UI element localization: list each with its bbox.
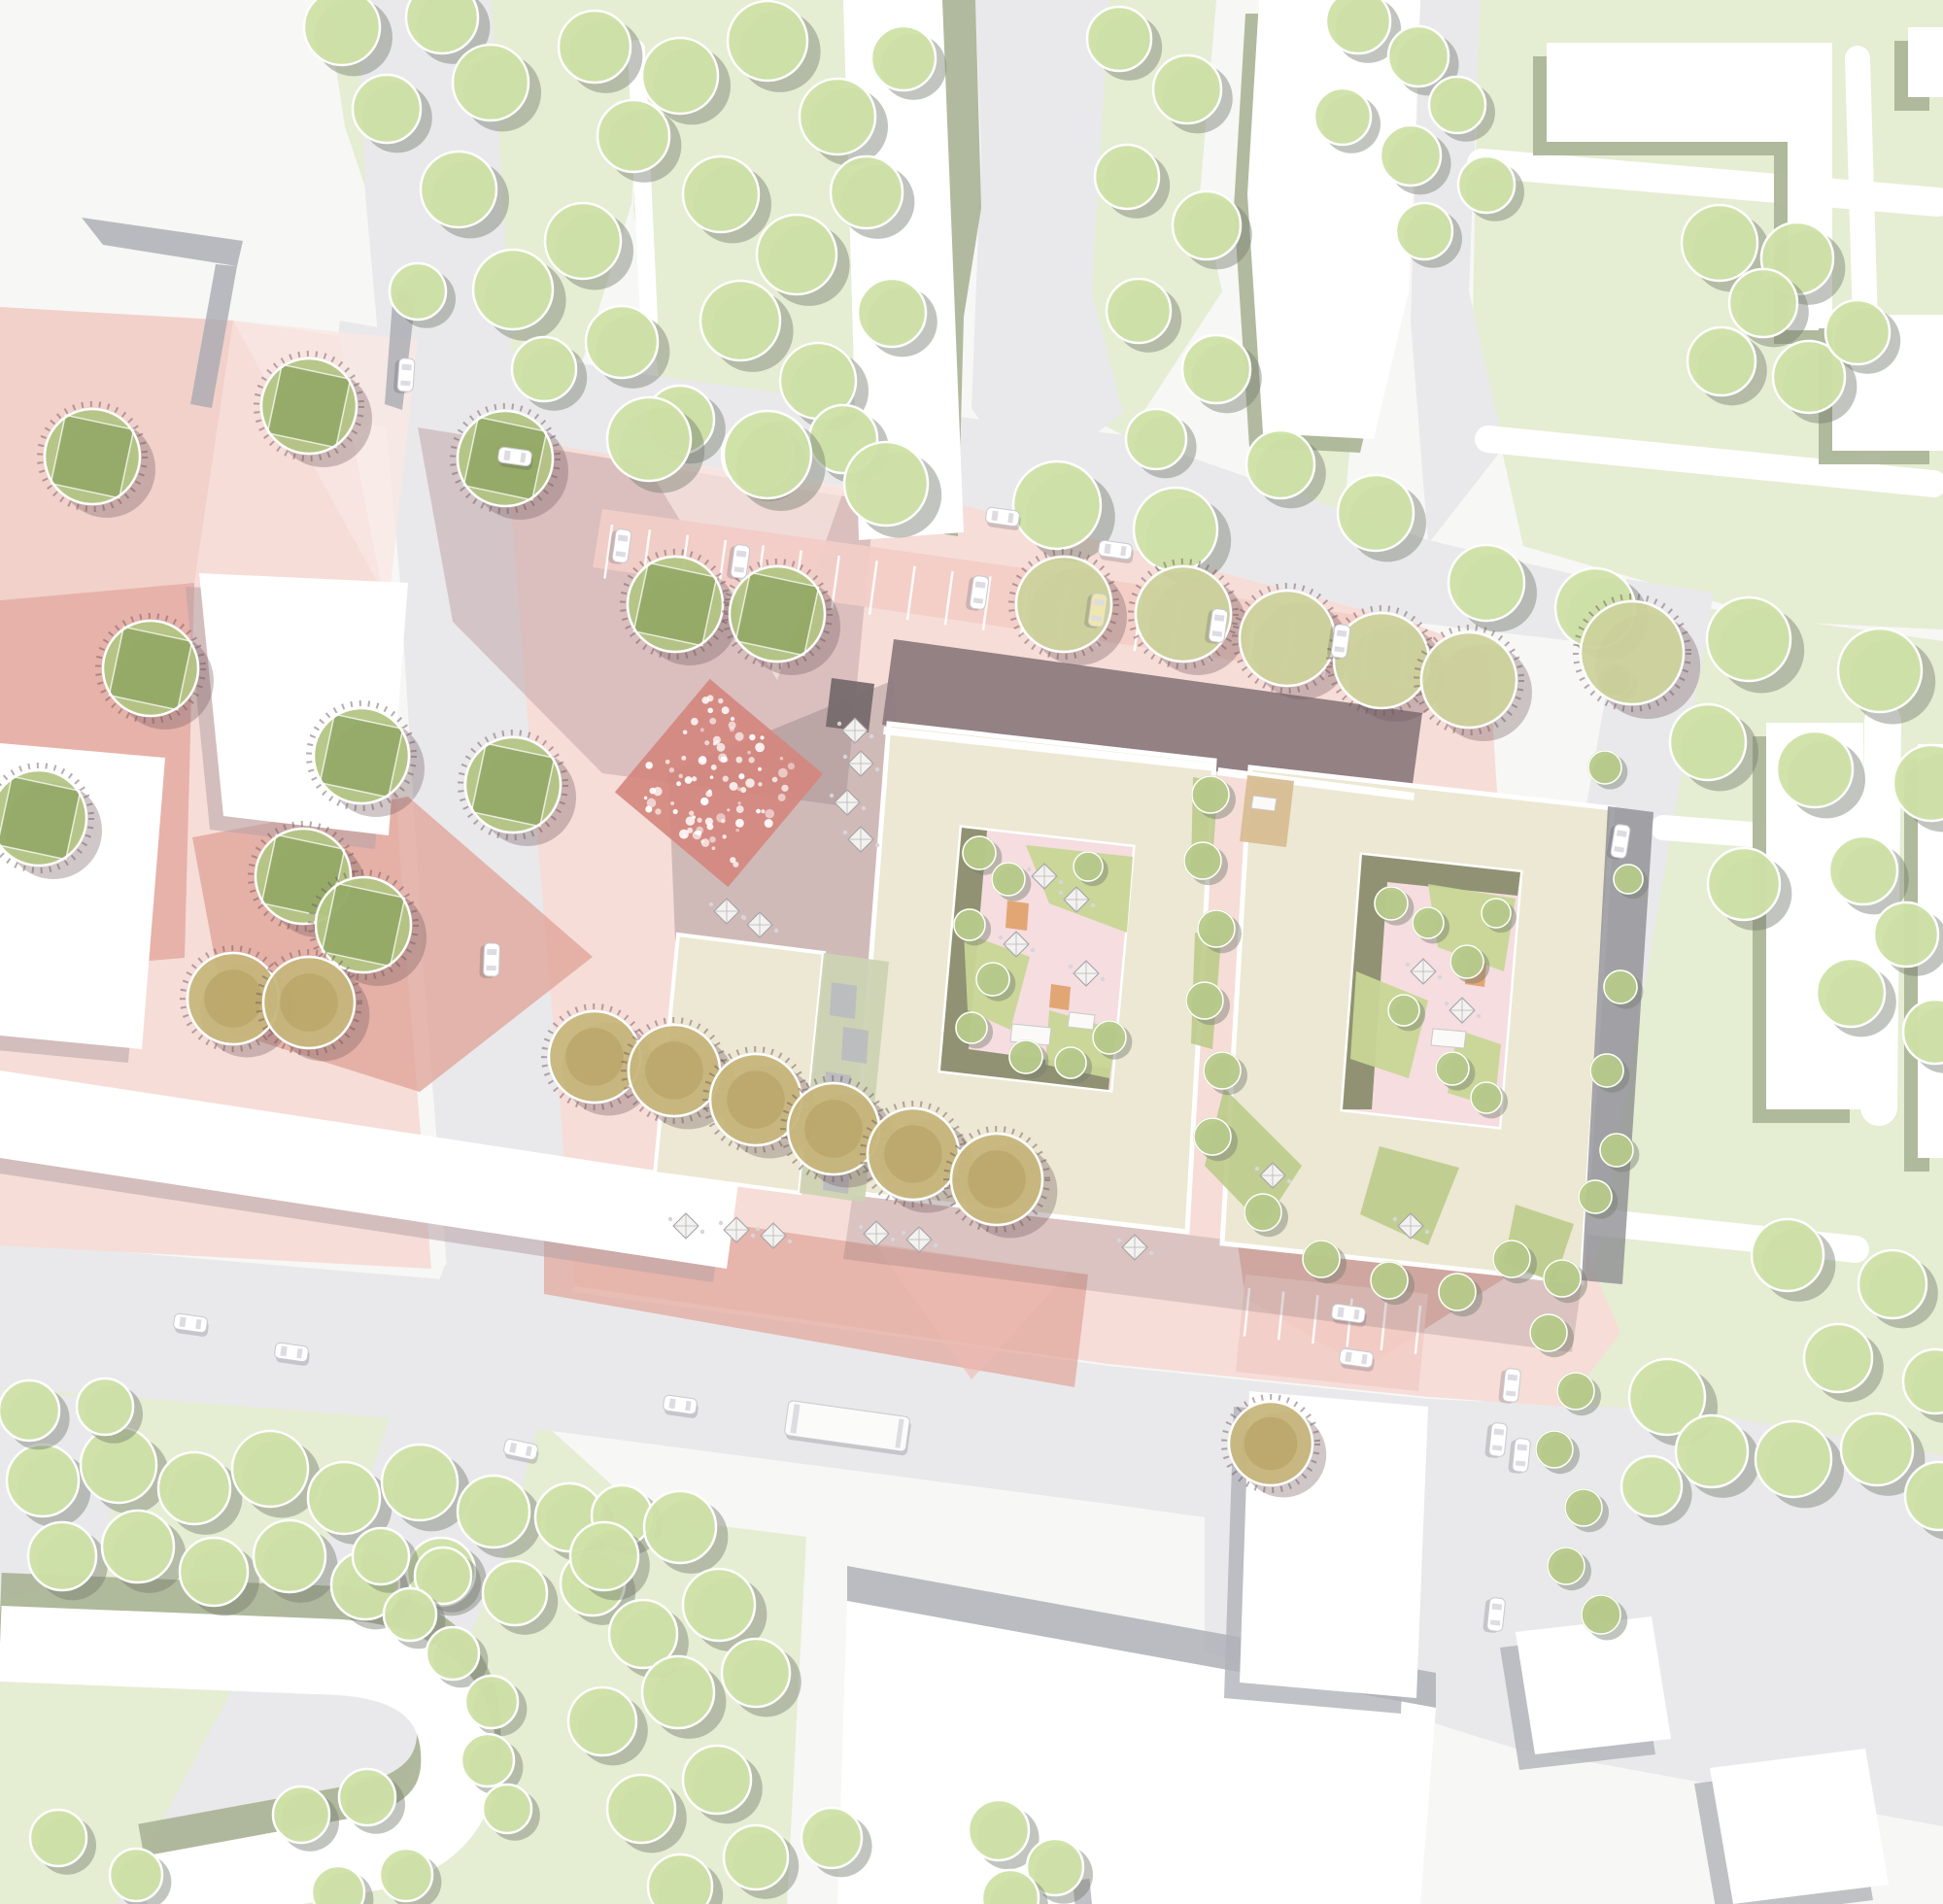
tree-planter: [267, 364, 350, 447]
car: [1508, 1438, 1531, 1475]
courtyard-element: [1006, 901, 1029, 931]
table-dot: [1425, 1230, 1429, 1234]
fountain-spray-dot: [723, 834, 727, 838]
tree: [1587, 750, 1622, 785]
car-body: [1488, 1422, 1507, 1456]
fountain-spray-dot: [700, 839, 704, 843]
car-glass: [1517, 1445, 1528, 1451]
tree: [1008, 1039, 1043, 1074]
site-plan: [0, 0, 1943, 1904]
table-dot: [843, 831, 847, 834]
table-dot: [1059, 880, 1063, 884]
tree-inner: [884, 1125, 942, 1183]
car-glass: [1494, 1429, 1505, 1436]
car-body: [1512, 1438, 1530, 1472]
tree-inner: [727, 1071, 785, 1129]
tree: [1613, 864, 1644, 895]
courtyard-element: [1431, 1029, 1466, 1048]
fountain-spray-dot: [748, 757, 754, 763]
table-dot: [902, 1231, 905, 1235]
fountain-spray-dot: [735, 732, 744, 741]
tree: [1543, 1259, 1582, 1298]
table-dot: [1069, 965, 1073, 969]
tree: [1054, 1046, 1087, 1079]
tree: [1492, 1240, 1531, 1278]
tree-inner: [804, 1100, 863, 1158]
table-dot: [934, 1243, 937, 1247]
fountain-spray-dot: [669, 767, 674, 772]
fountain-spray-dot: [781, 785, 788, 792]
fountain-spray-dot: [721, 756, 728, 763]
tree: [1589, 1053, 1624, 1088]
fountain-spray-dot: [735, 757, 742, 764]
fountain-spray-dot: [758, 782, 762, 786]
table-dot: [875, 767, 879, 771]
fountain-spray-dot: [745, 778, 755, 788]
tree: [953, 908, 986, 941]
car: [393, 357, 415, 393]
tree: [991, 862, 1026, 897]
tree-planter: [322, 883, 404, 966]
tree: [1412, 906, 1445, 939]
complex-building: [830, 982, 857, 1019]
fountain-spray-dot: [705, 818, 713, 826]
tree-inner: [204, 969, 262, 1028]
table-dot: [719, 1221, 723, 1225]
table-dot: [837, 722, 841, 726]
fountain-spray-dot: [735, 819, 744, 828]
car-body: [1502, 1368, 1520, 1402]
fountain-spray-dot: [689, 811, 694, 816]
fountain-spray-dot: [697, 818, 701, 823]
fountain-spray-dot: [780, 757, 783, 760]
fountain-spray-dot: [711, 765, 717, 770]
table-dot: [788, 1240, 792, 1243]
table-dot: [859, 1225, 863, 1229]
tree-inner: [645, 1041, 703, 1100]
car: [1484, 1422, 1508, 1459]
tree: [1556, 1372, 1595, 1411]
fountain-spray-dot: [710, 775, 714, 779]
tree-inner: [565, 1028, 624, 1086]
fountain-spray-dot: [686, 816, 696, 826]
car-glass: [1516, 1460, 1525, 1466]
fountain-spray-dot: [717, 743, 726, 752]
table-dot: [774, 929, 778, 933]
tree: [1185, 981, 1224, 1020]
fountain-spray-dot: [778, 794, 786, 801]
tree: [1449, 944, 1484, 979]
tree-inner: [968, 1150, 1026, 1208]
fountain-spray-dot: [691, 718, 699, 726]
building: [1710, 1749, 1889, 1904]
table-dot: [830, 794, 834, 798]
fountain-spray-dot: [707, 708, 713, 714]
table-dot: [1393, 1217, 1397, 1221]
table-dot: [1101, 977, 1105, 981]
fountain-spray-dot: [647, 799, 657, 808]
fountain-spray-dot: [673, 809, 678, 814]
table-dot: [1117, 1239, 1121, 1242]
tree: [1244, 1193, 1282, 1232]
fountain-spray-dot: [749, 734, 755, 740]
tree-planter: [0, 776, 81, 859]
courtyard-element: [1240, 775, 1294, 847]
car-body: [1486, 1597, 1505, 1631]
fountain-spray-dot: [727, 808, 730, 811]
fountain-spray-dot: [721, 819, 726, 824]
fountain-spray-dot: [761, 809, 765, 813]
table-dot: [875, 843, 879, 847]
car-glass: [1492, 1604, 1503, 1611]
path: [1663, 828, 1764, 835]
fountain-spray-dot: [738, 773, 744, 779]
tree: [1603, 969, 1638, 1004]
fountain-spray-dot: [679, 830, 689, 839]
fountain-spray-dot: [712, 846, 716, 850]
tree-inner: [280, 973, 338, 1032]
tree: [1073, 851, 1104, 882]
tree-planter: [471, 743, 554, 826]
table-dot: [1149, 1251, 1153, 1255]
car-body: [483, 943, 499, 977]
car-glass: [1492, 1445, 1502, 1450]
fountain-spray-dot: [740, 787, 746, 793]
fountain-spray-dot: [700, 798, 708, 805]
fountain-spray-dot: [723, 776, 729, 782]
table-dot: [1059, 891, 1063, 895]
fountain-spray-dot: [722, 706, 730, 714]
fountain-spray-dot: [788, 763, 795, 769]
car-glass: [1490, 1619, 1500, 1625]
tree: [1197, 909, 1236, 948]
table-dot: [1091, 903, 1095, 907]
courtyard-element: [1251, 796, 1277, 811]
car-glass: [487, 949, 496, 955]
tree: [975, 962, 1010, 997]
fountain-spray-dot: [765, 819, 773, 828]
tree: [1183, 841, 1222, 880]
car: [1483, 1597, 1506, 1634]
tree: [1547, 1547, 1585, 1585]
tree: [1564, 1488, 1603, 1527]
tree: [1193, 1117, 1232, 1156]
car-glass: [487, 966, 496, 970]
table-dot: [843, 755, 847, 759]
fountain-spray-dot: [678, 774, 682, 778]
fountain-spray-dot: [772, 777, 778, 783]
tree: [1578, 1179, 1613, 1214]
table-dot: [869, 734, 873, 738]
tree: [1438, 1273, 1477, 1311]
tree: [1203, 1051, 1242, 1090]
tree: [1599, 1133, 1634, 1168]
car-glass: [400, 381, 410, 387]
table-dot: [999, 935, 1003, 939]
table-dot: [741, 915, 745, 919]
fountain-spray-dot: [676, 781, 681, 786]
tree-planter: [109, 627, 191, 709]
site-plan-page: [0, 0, 1943, 1904]
fountain-spray-dot: [644, 797, 647, 799]
tree: [1370, 1261, 1409, 1300]
tree-inner: [1244, 1417, 1298, 1471]
building: [1908, 27, 1943, 97]
car: [479, 943, 499, 979]
tree: [1092, 1020, 1127, 1055]
fountain-spray-dot: [704, 740, 709, 745]
car: [1498, 1368, 1521, 1405]
fountain-spray-dot: [730, 782, 738, 791]
tree-planter: [735, 572, 818, 655]
tree: [962, 835, 997, 870]
fountain-spray-dot: [730, 727, 734, 731]
fountain-spray-dot: [670, 801, 674, 805]
tree-planter: [633, 562, 716, 645]
tree-planter: [320, 714, 402, 797]
fountain-spray-dot: [735, 829, 739, 833]
fountain-spray-dot: [730, 857, 735, 863]
tree: [1387, 994, 1420, 1027]
car-body: [397, 357, 415, 391]
fountain-spray-dot: [709, 718, 716, 725]
fountain-spray-dot: [683, 730, 688, 734]
fountain-spray-dot: [737, 801, 740, 804]
tree-planter: [51, 415, 133, 497]
fountain-spray-dot: [685, 776, 693, 784]
fountain-spray-dot: [778, 768, 788, 778]
car-glass: [401, 364, 411, 371]
fountain-spray-dot: [713, 736, 721, 744]
fountain-spray-dot: [758, 767, 762, 771]
fountain-spray-dot: [700, 728, 704, 731]
fountain-spray-dot: [693, 831, 701, 839]
fountain-spray-dot: [755, 742, 765, 752]
fountain-spray-dot: [692, 776, 697, 781]
fountain-spray-dot: [645, 762, 652, 768]
fountain-spray-dot: [756, 809, 761, 814]
tree: [1581, 1594, 1621, 1635]
table-dot: [668, 1217, 672, 1221]
table-dot: [1477, 1014, 1481, 1018]
fountain-spray-dot: [699, 756, 706, 763]
fountain-spray-dot: [655, 808, 661, 814]
car-glass: [1506, 1390, 1516, 1396]
fountain-spray-dot: [708, 790, 712, 794]
table-dot: [756, 1227, 760, 1231]
complex-building: [841, 1027, 869, 1064]
table-dot: [1438, 975, 1442, 979]
table-dot: [1445, 1002, 1449, 1005]
fountain-spray-dot: [736, 805, 744, 813]
fountain-spray-dot: [747, 751, 751, 755]
courtyard-element: [1049, 984, 1071, 1010]
tree: [1374, 886, 1409, 921]
tree: [1191, 775, 1230, 814]
tree: [1302, 1240, 1341, 1278]
building: [1516, 1616, 1671, 1754]
fountain-spray-dot: [681, 756, 686, 761]
table-dot: [1031, 948, 1035, 952]
table-dot: [1287, 1179, 1291, 1183]
table-dot: [1406, 963, 1410, 967]
fountain-spray-dot: [760, 735, 764, 739]
car-glass: [1508, 1375, 1518, 1381]
table-dot: [1027, 867, 1031, 871]
fountain-spray-dot: [765, 809, 774, 819]
table-dot: [891, 1238, 895, 1241]
table-dot: [751, 1234, 755, 1238]
tree: [1470, 1081, 1503, 1114]
fountain-spray-dot: [709, 836, 716, 843]
fountain-spray-dot: [665, 760, 670, 765]
tree: [1529, 1313, 1568, 1352]
fountain-spray-dot: [718, 698, 724, 704]
tree: [955, 1011, 988, 1044]
table-dot: [1255, 1167, 1259, 1171]
courtyard-element: [1068, 1012, 1095, 1030]
table-dot: [709, 902, 713, 906]
tree: [1535, 1430, 1574, 1469]
table-dot: [700, 1230, 704, 1234]
fountain-spray-dot: [653, 787, 662, 796]
table-dot: [862, 806, 866, 810]
tree: [1481, 898, 1512, 929]
fountain-spray-dot: [731, 717, 734, 721]
fountain-spray-dot: [701, 697, 709, 704]
tree: [1435, 1051, 1470, 1086]
